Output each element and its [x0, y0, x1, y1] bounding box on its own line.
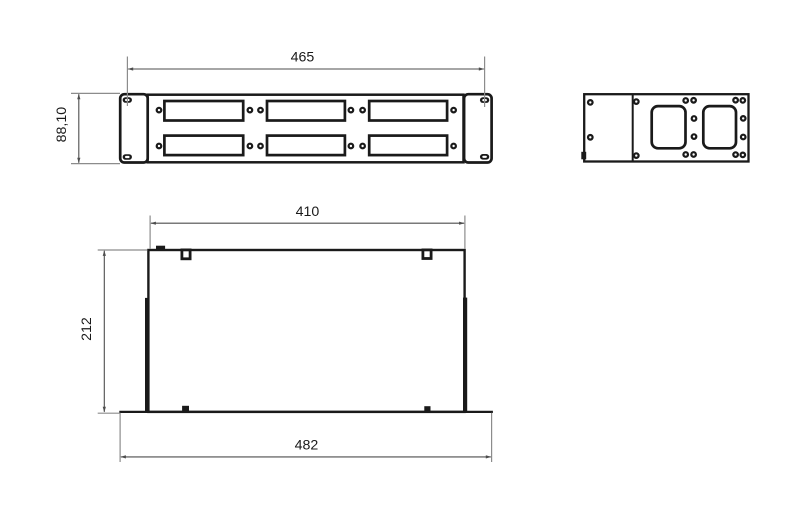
- svg-text:465: 465: [291, 49, 315, 65]
- svg-text:212: 212: [79, 317, 95, 341]
- svg-text:410: 410: [296, 204, 320, 220]
- svg-text:482: 482: [295, 438, 319, 454]
- svg-text:88,10: 88,10: [54, 107, 70, 143]
